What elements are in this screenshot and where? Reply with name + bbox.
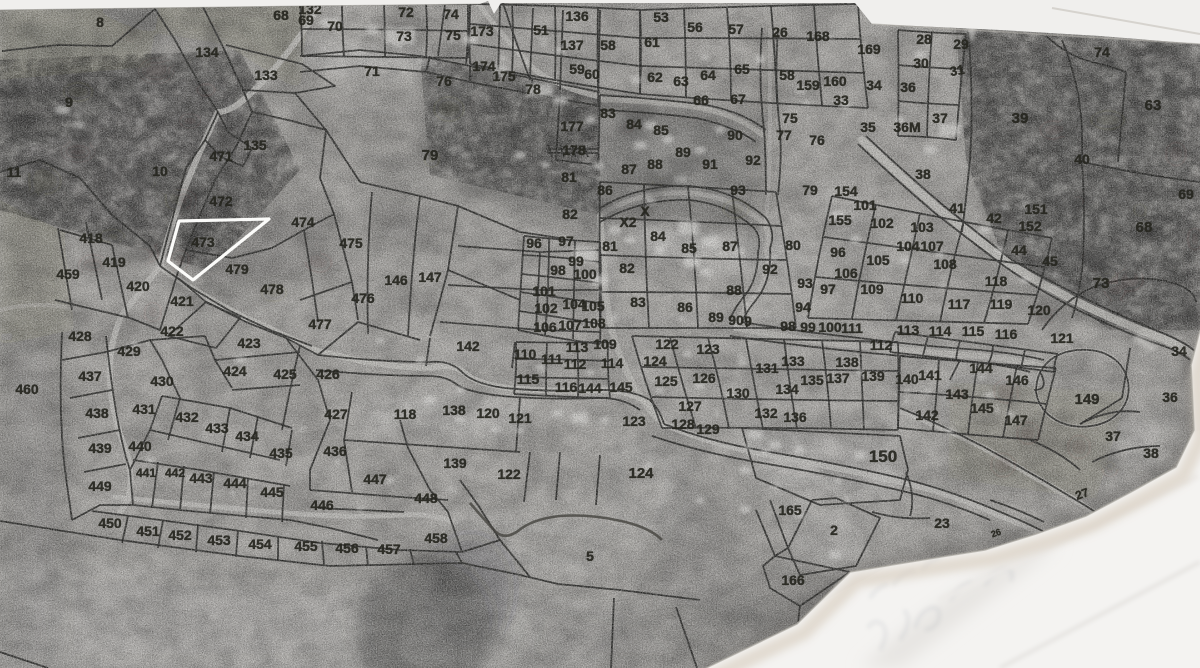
svg-text:441: 441 (136, 466, 156, 480)
svg-text:28: 28 (916, 31, 932, 47)
svg-text:165: 165 (778, 502, 802, 518)
svg-text:108: 108 (933, 256, 957, 272)
svg-text:478: 478 (260, 281, 284, 297)
svg-text:106: 106 (834, 265, 858, 281)
svg-text:102: 102 (534, 300, 558, 316)
svg-text:79: 79 (802, 182, 818, 198)
svg-text:119: 119 (990, 296, 1013, 312)
svg-text:443: 443 (189, 470, 213, 486)
svg-text:37: 37 (1105, 428, 1121, 444)
svg-text:121: 121 (1050, 330, 1074, 346)
svg-text:78: 78 (525, 81, 541, 97)
svg-text:87: 87 (722, 238, 738, 254)
svg-text:120: 120 (1027, 302, 1051, 318)
svg-text:144: 144 (578, 380, 602, 396)
svg-text:173: 173 (470, 23, 494, 39)
svg-text:85: 85 (681, 240, 697, 256)
svg-text:105: 105 (866, 252, 890, 268)
svg-text:86: 86 (677, 299, 693, 315)
svg-text:136: 136 (565, 8, 589, 24)
svg-text:152: 152 (1018, 218, 1042, 234)
svg-text:108: 108 (582, 315, 606, 331)
svg-text:68: 68 (273, 7, 289, 23)
svg-text:118: 118 (394, 406, 417, 422)
svg-text:72: 72 (398, 4, 414, 20)
svg-text:114: 114 (601, 355, 624, 371)
svg-text:426: 426 (316, 366, 340, 382)
svg-text:5: 5 (586, 548, 594, 564)
svg-text:113: 113 (566, 339, 589, 355)
svg-text:440: 440 (128, 438, 152, 454)
svg-text:476: 476 (351, 290, 375, 306)
svg-text:168: 168 (806, 28, 830, 44)
svg-text:147: 147 (1004, 412, 1028, 428)
svg-text:64: 64 (700, 67, 716, 83)
svg-text:98: 98 (780, 318, 796, 334)
svg-text:126: 126 (692, 370, 716, 386)
svg-text:81: 81 (561, 169, 577, 185)
svg-text:146: 146 (384, 272, 408, 288)
svg-text:100: 100 (573, 266, 597, 282)
svg-text:39: 39 (1012, 110, 1029, 127)
svg-text:69: 69 (1178, 186, 1194, 202)
svg-text:63: 63 (673, 73, 689, 89)
svg-text:36M: 36M (893, 119, 920, 135)
svg-text:65: 65 (734, 61, 750, 77)
svg-text:128: 128 (671, 416, 695, 432)
svg-text:26: 26 (772, 24, 788, 40)
svg-text:138: 138 (835, 354, 859, 370)
svg-text:435: 435 (269, 445, 293, 461)
svg-text:96: 96 (526, 235, 542, 251)
svg-text:450: 450 (98, 515, 122, 531)
svg-text:421: 421 (170, 293, 194, 309)
svg-text:149: 149 (1074, 391, 1099, 408)
svg-text:51: 51 (533, 22, 549, 38)
svg-text:159: 159 (796, 77, 820, 93)
svg-text:56: 56 (687, 19, 703, 35)
svg-text:71: 71 (364, 63, 380, 79)
svg-text:93: 93 (797, 275, 813, 291)
svg-text:34: 34 (1171, 343, 1187, 359)
svg-text:457: 457 (377, 541, 401, 557)
svg-text:34: 34 (866, 77, 882, 93)
svg-text:102: 102 (870, 215, 894, 231)
svg-text:96: 96 (830, 244, 846, 260)
svg-text:127: 127 (678, 398, 702, 414)
svg-text:136: 136 (783, 409, 807, 425)
svg-text:428: 428 (68, 328, 92, 344)
svg-text:73: 73 (1093, 275, 1110, 292)
svg-text:116: 116 (555, 379, 578, 395)
svg-text:129: 129 (696, 421, 720, 437)
svg-text:79: 79 (422, 147, 439, 164)
svg-text:475: 475 (339, 235, 363, 251)
svg-text:38: 38 (915, 166, 931, 182)
svg-text:42: 42 (986, 210, 1002, 226)
svg-text:66: 66 (693, 92, 709, 108)
svg-text:63: 63 (1145, 97, 1162, 114)
svg-text:58: 58 (779, 67, 795, 83)
svg-text:58: 58 (600, 37, 616, 53)
svg-text:122: 122 (497, 466, 521, 482)
svg-text:460: 460 (15, 381, 39, 397)
svg-text:86: 86 (597, 182, 613, 198)
svg-text:80: 80 (785, 237, 801, 253)
svg-text:134: 134 (775, 381, 799, 397)
svg-text:98: 98 (550, 262, 566, 278)
svg-text:418: 418 (79, 230, 103, 246)
svg-text:449: 449 (88, 478, 112, 494)
svg-text:122: 122 (655, 336, 679, 352)
svg-text:166: 166 (781, 572, 805, 588)
svg-text:419: 419 (102, 254, 126, 270)
svg-text:85: 85 (653, 122, 669, 138)
svg-text:89: 89 (708, 309, 724, 325)
svg-text:134: 134 (195, 44, 219, 60)
svg-text:83: 83 (630, 294, 646, 310)
svg-text:62: 62 (647, 69, 663, 85)
svg-text:459: 459 (56, 266, 80, 282)
svg-text:137: 137 (560, 37, 584, 53)
svg-text:38: 38 (1143, 445, 1159, 461)
svg-text:40: 40 (1074, 151, 1090, 167)
svg-text:425: 425 (273, 366, 297, 382)
svg-text:448: 448 (414, 490, 438, 506)
svg-text:70: 70 (327, 18, 343, 34)
svg-text:133: 133 (254, 67, 278, 83)
svg-text:33: 33 (833, 92, 849, 108)
svg-text:37: 37 (932, 110, 948, 126)
svg-text:142: 142 (915, 407, 939, 423)
svg-text:120: 120 (476, 405, 500, 421)
svg-text:112: 112 (870, 337, 893, 353)
svg-text:138: 138 (442, 402, 466, 418)
svg-text:90: 90 (728, 312, 744, 328)
svg-text:84: 84 (626, 116, 642, 132)
svg-text:471: 471 (209, 148, 233, 164)
svg-text:139: 139 (443, 455, 467, 471)
svg-text:444: 444 (223, 475, 247, 491)
svg-text:92: 92 (762, 261, 778, 277)
svg-text:100: 100 (818, 319, 842, 335)
svg-text:123: 123 (622, 413, 646, 429)
svg-text:479: 479 (225, 261, 249, 277)
svg-text:75: 75 (445, 27, 461, 43)
svg-text:447: 447 (363, 471, 387, 487)
svg-text:30: 30 (913, 55, 929, 71)
svg-text:97: 97 (558, 233, 574, 249)
svg-text:477: 477 (308, 316, 332, 332)
svg-text:117: 117 (948, 296, 971, 312)
svg-text:427: 427 (324, 406, 348, 422)
svg-text:110: 110 (514, 346, 537, 362)
svg-text:41: 41 (949, 200, 965, 216)
svg-text:445: 445 (260, 484, 284, 500)
svg-text:76: 76 (436, 73, 452, 89)
svg-text:125: 125 (654, 373, 678, 389)
svg-text:135: 135 (243, 137, 267, 153)
svg-text:121: 121 (508, 410, 532, 426)
svg-text:433: 433 (205, 420, 229, 436)
svg-text:103: 103 (910, 219, 934, 235)
svg-text:115: 115 (517, 371, 540, 387)
svg-text:99: 99 (800, 319, 816, 335)
svg-text:89: 89 (675, 144, 691, 160)
svg-text:140: 140 (895, 371, 919, 387)
svg-text:69: 69 (298, 12, 314, 28)
svg-text:422: 422 (160, 323, 184, 339)
svg-text:93: 93 (730, 182, 746, 198)
svg-text:X2: X2 (619, 214, 636, 230)
svg-text:87: 87 (621, 161, 637, 177)
svg-text:107: 107 (920, 238, 944, 254)
svg-text:123: 123 (696, 341, 720, 357)
svg-text:437: 437 (78, 368, 102, 384)
svg-text:446: 446 (310, 497, 334, 513)
svg-text:118: 118 (985, 273, 1008, 289)
svg-text:61: 61 (644, 34, 660, 50)
svg-text:455: 455 (294, 538, 318, 554)
svg-text:36: 36 (1162, 389, 1178, 405)
svg-text:57: 57 (728, 21, 744, 37)
svg-text:169: 169 (857, 41, 881, 57)
svg-text:44: 44 (1011, 242, 1027, 258)
svg-text:178: 178 (562, 142, 586, 158)
svg-text:84: 84 (650, 228, 666, 244)
svg-text:35: 35 (860, 119, 876, 135)
svg-text:473: 473 (191, 234, 215, 250)
svg-text:36: 36 (900, 79, 916, 95)
svg-text:92: 92 (745, 152, 761, 168)
svg-text:11: 11 (7, 164, 22, 180)
svg-text:424: 424 (223, 363, 247, 379)
svg-text:124: 124 (628, 465, 654, 482)
svg-text:131: 131 (755, 360, 779, 376)
svg-text:420: 420 (126, 278, 150, 294)
svg-text:77: 77 (776, 127, 792, 143)
svg-text:145: 145 (609, 379, 633, 395)
svg-text:430: 430 (150, 373, 174, 389)
svg-text:107: 107 (558, 317, 582, 333)
svg-text:9: 9 (65, 94, 73, 110)
svg-text:74: 74 (443, 6, 459, 22)
svg-text:143: 143 (945, 386, 969, 402)
svg-text:X: X (640, 203, 650, 219)
svg-text:10: 10 (152, 163, 168, 179)
svg-text:451: 451 (136, 523, 160, 539)
svg-text:53: 53 (653, 9, 669, 25)
svg-text:75: 75 (782, 110, 798, 126)
svg-text:145: 145 (970, 400, 994, 416)
svg-text:104: 104 (896, 238, 920, 254)
svg-text:82: 82 (619, 260, 635, 276)
svg-text:133: 133 (781, 353, 805, 369)
svg-text:76: 76 (809, 132, 825, 148)
svg-text:83: 83 (600, 105, 616, 121)
svg-text:109: 109 (593, 336, 617, 352)
svg-text:429: 429 (117, 343, 141, 359)
svg-text:31: 31 (949, 62, 966, 79)
svg-text:175: 175 (492, 68, 516, 84)
svg-text:438: 438 (85, 405, 109, 421)
svg-text:146: 146 (1005, 372, 1029, 388)
svg-text:436: 436 (323, 443, 347, 459)
svg-text:144: 144 (969, 360, 993, 376)
svg-text:97: 97 (820, 281, 836, 297)
svg-text:434: 434 (235, 428, 259, 444)
svg-text:74: 74 (1094, 44, 1110, 60)
svg-text:8: 8 (96, 14, 104, 30)
svg-text:67: 67 (730, 91, 746, 107)
svg-text:91: 91 (702, 156, 718, 172)
svg-text:9: 9 (744, 313, 752, 329)
svg-text:111: 111 (541, 351, 563, 367)
svg-text:88: 88 (647, 156, 663, 172)
svg-text:88: 88 (726, 282, 742, 298)
svg-text:105: 105 (581, 298, 605, 314)
svg-text:150: 150 (869, 447, 897, 466)
svg-text:73: 73 (396, 28, 412, 44)
svg-text:141: 141 (918, 367, 942, 383)
svg-text:94: 94 (795, 299, 811, 315)
svg-text:151: 151 (1024, 201, 1048, 217)
svg-text:142: 142 (456, 338, 480, 354)
svg-text:101: 101 (532, 283, 556, 299)
svg-text:101: 101 (853, 197, 877, 213)
svg-text:177: 177 (560, 118, 584, 134)
svg-text:29: 29 (953, 36, 969, 52)
svg-text:474: 474 (291, 214, 315, 230)
svg-text:160: 160 (823, 73, 847, 89)
svg-text:458: 458 (424, 530, 448, 546)
svg-text:453: 453 (207, 532, 231, 548)
svg-text:135: 135 (800, 372, 824, 388)
svg-text:45: 45 (1042, 253, 1058, 269)
svg-text:442: 442 (165, 466, 185, 480)
svg-text:124: 124 (643, 353, 667, 369)
svg-text:139: 139 (861, 368, 885, 384)
svg-text:81: 81 (602, 238, 618, 254)
svg-text:90: 90 (727, 127, 743, 143)
svg-text:431: 431 (132, 401, 156, 417)
svg-text:155: 155 (828, 212, 852, 228)
svg-text:110: 110 (901, 290, 924, 306)
svg-text:137: 137 (826, 370, 850, 386)
svg-text:147: 147 (418, 269, 442, 285)
svg-text:454: 454 (248, 536, 272, 552)
svg-text:2: 2 (830, 522, 838, 538)
svg-text:130: 130 (726, 385, 750, 401)
svg-text:452: 452 (168, 527, 192, 543)
svg-text:439: 439 (88, 440, 112, 456)
svg-text:114: 114 (929, 323, 952, 339)
svg-text:60: 60 (584, 66, 600, 82)
svg-text:456: 456 (335, 540, 359, 556)
svg-text:432: 432 (175, 409, 199, 425)
svg-text:59: 59 (569, 61, 585, 77)
svg-text:23: 23 (934, 515, 950, 531)
svg-text:82: 82 (562, 206, 578, 222)
svg-text:68: 68 (1136, 219, 1153, 236)
svg-text:109: 109 (860, 281, 884, 297)
svg-text:106: 106 (533, 319, 557, 335)
svg-text:113: 113 (897, 322, 920, 338)
svg-text:112: 112 (564, 356, 587, 372)
svg-text:115: 115 (962, 323, 985, 339)
svg-text:132: 132 (754, 405, 778, 421)
svg-text:116: 116 (995, 326, 1018, 342)
svg-text:472: 472 (209, 193, 233, 209)
svg-text:423: 423 (237, 335, 261, 351)
svg-text:111: 111 (841, 320, 863, 336)
